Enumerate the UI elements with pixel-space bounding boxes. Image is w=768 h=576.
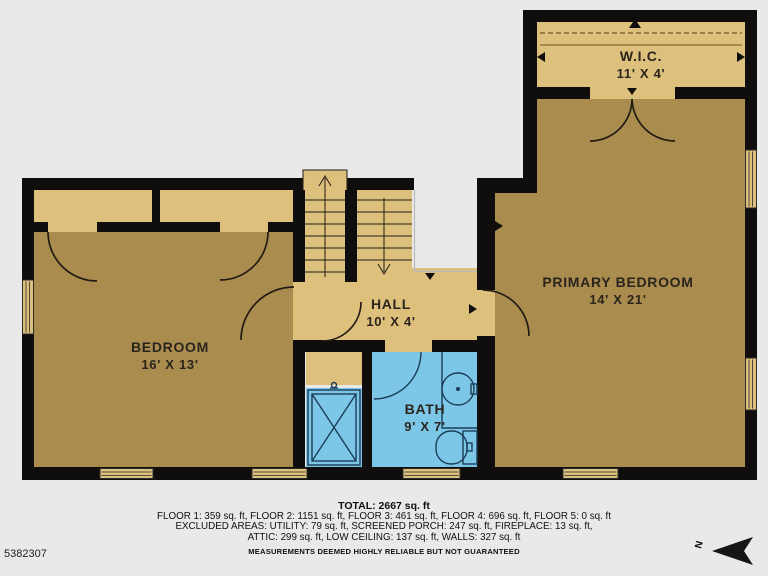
room-dims: 10' X 4': [366, 314, 415, 331]
room-label-bath: BATH 9' X 7': [404, 400, 445, 436]
room-name: PRIMARY BEDROOM: [542, 273, 693, 291]
room-dims: 16' X 13': [131, 357, 209, 374]
area-summary: TOTAL: 2667 sq. ft FLOOR 1: 359 sq. ft, …: [0, 501, 768, 556]
room-label-bedroom: BEDROOM 16' X 13': [131, 338, 209, 374]
floor-plan-page: N W.I.C. 11' X 4' PRIMARY BEDROOM 14' X …: [0, 0, 768, 576]
room-dims: 14' X 21': [542, 292, 693, 309]
room-dims: 11' X 4': [617, 66, 666, 83]
room-name: HALL: [366, 295, 415, 313]
room-label-primary-bedroom: PRIMARY BEDROOM 14' X 21': [542, 273, 693, 309]
room-label-hall: HALL 10' X 4': [366, 295, 415, 331]
room-name: W.I.C.: [617, 47, 666, 65]
excluded-areas2: ATTIC: 299 sq. ft, LOW CEILING: 137 sq. …: [0, 533, 768, 543]
room-primary-upper-floor: [537, 99, 745, 193]
room-label-wic: W.I.C. 11' X 4': [617, 47, 666, 83]
room-name: BEDROOM: [131, 338, 209, 356]
stairwell-void-edge: [415, 190, 478, 272]
disclaimer: MEASUREMENTS DEEMED HIGHLY RELIABLE BUT …: [0, 547, 768, 556]
linen-closet-floor: [306, 352, 362, 385]
room-primary-floor: [495, 193, 745, 467]
listing-id: 5382307: [4, 548, 47, 560]
room-dims: 9' X 7': [404, 419, 445, 436]
room-name: BATH: [404, 400, 445, 418]
